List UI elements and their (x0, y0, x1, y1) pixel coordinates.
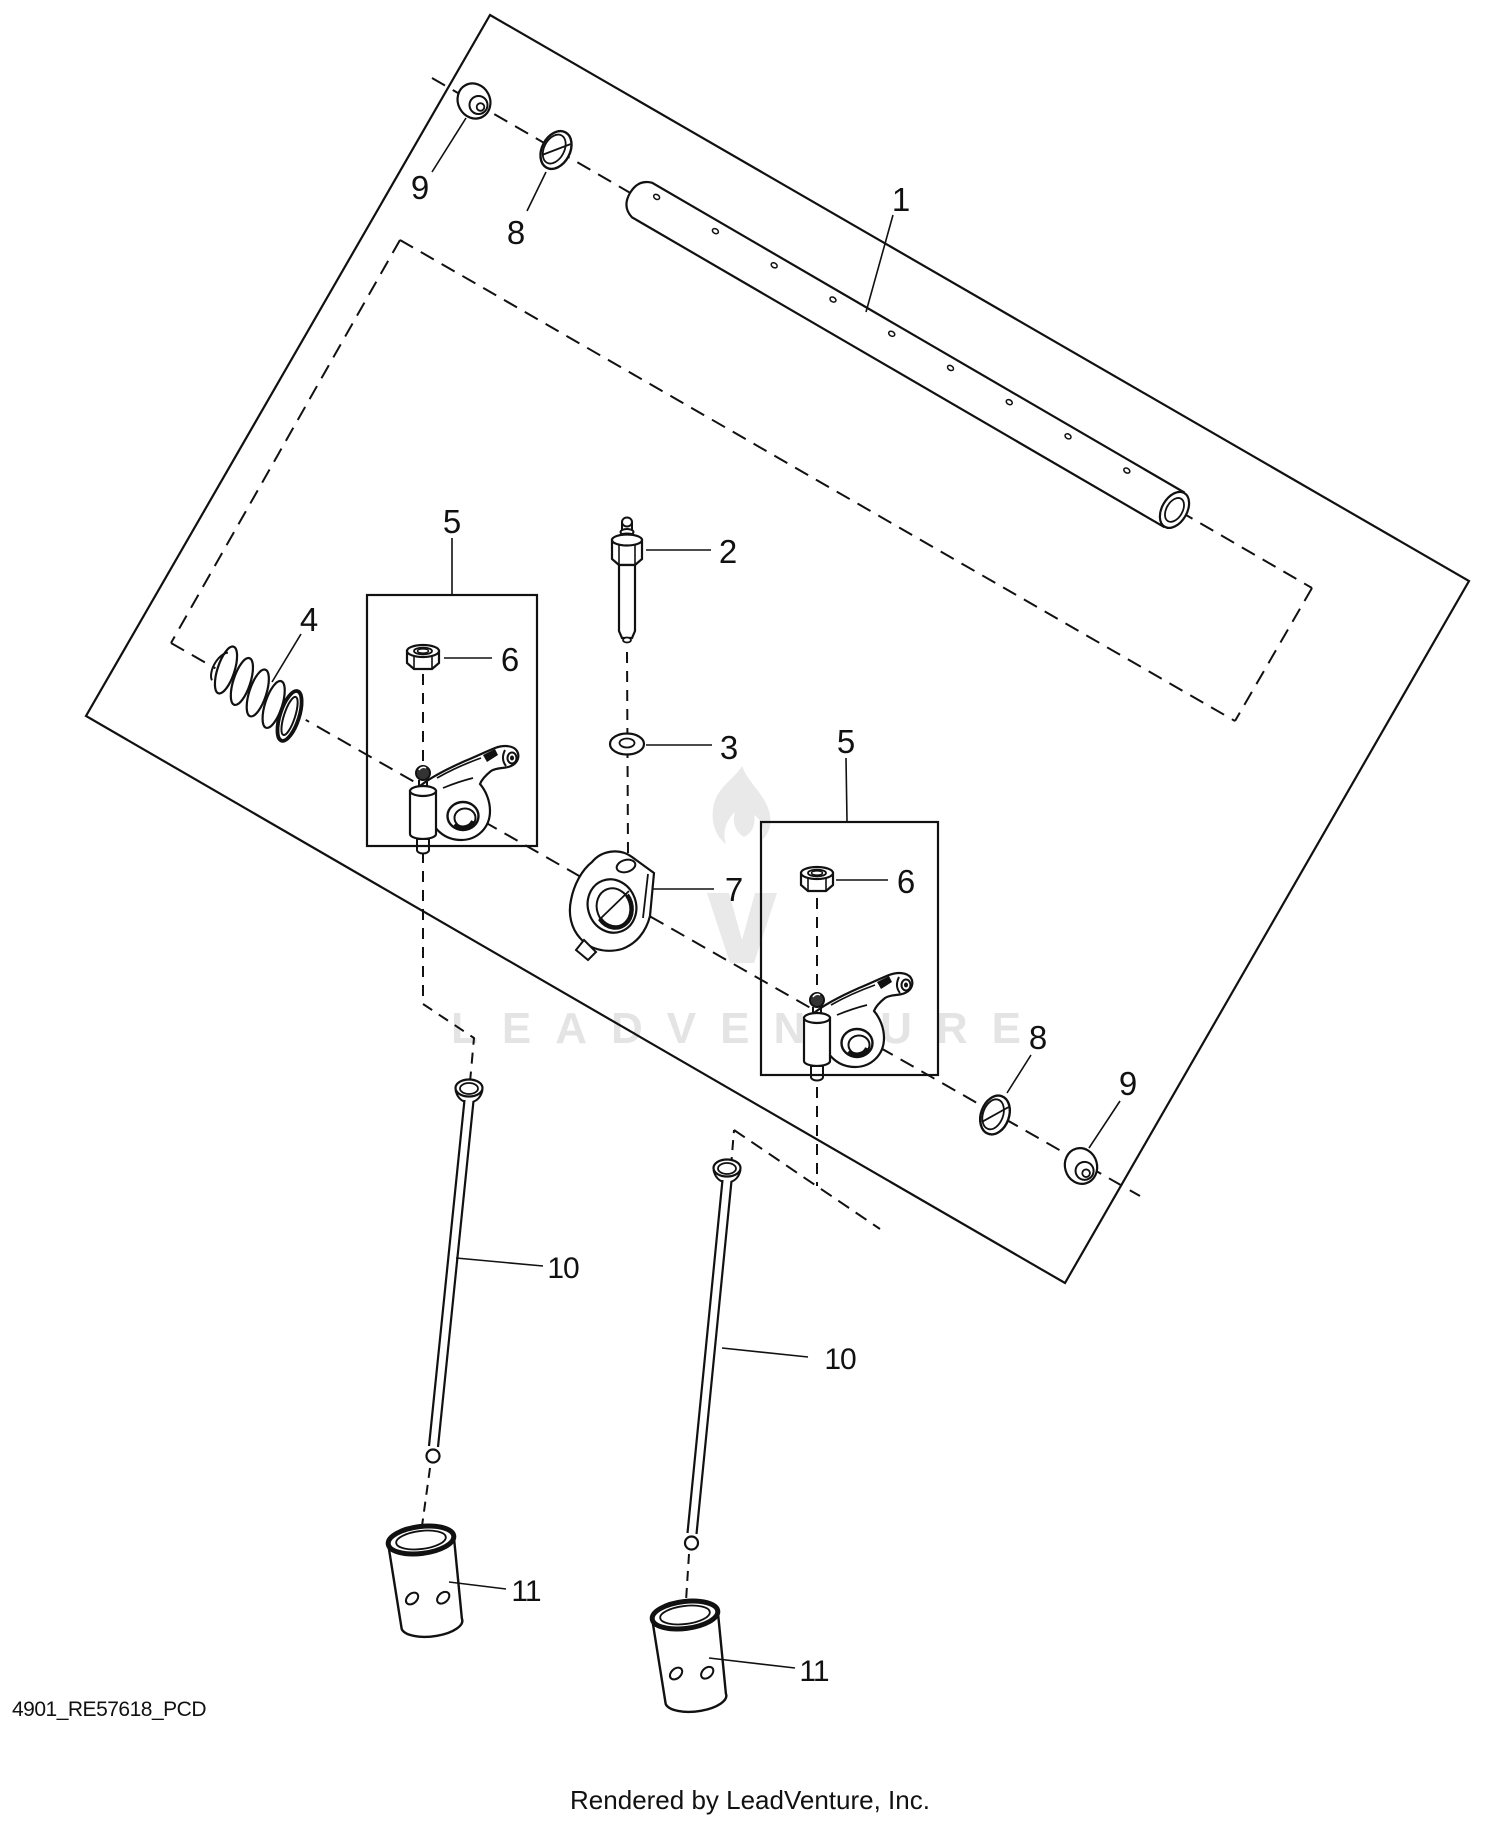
watermark-text: LEADVENTURE (451, 1004, 1045, 1053)
parts-diagram-page: LEADVENTURE (0, 0, 1500, 1823)
callout-8-top: 8 (507, 214, 525, 251)
part-6-nut-right (801, 867, 833, 891)
part-11-follower-left (387, 1523, 466, 1641)
part-6-nut-left (407, 645, 439, 669)
callout-11-right: 11 (799, 1655, 828, 1688)
callout-2: 2 (719, 533, 737, 570)
dashed-lines (171, 78, 1312, 1601)
part-8-cup-washer-top (534, 126, 578, 174)
leadventure-watermark: LEADVENTURE (451, 766, 1045, 1053)
callout-6-left: 6 (501, 641, 519, 678)
leadventure-flame-logo (707, 766, 777, 963)
callout-4: 4 (300, 601, 318, 638)
part-9-cap-bottom (1054, 1138, 1108, 1193)
callout-5-right: 5 (837, 723, 855, 760)
callout-11-left: 11 (511, 1575, 540, 1608)
callout-7: 7 (725, 871, 743, 908)
part-2-stud (612, 518, 642, 643)
outer-boundary (86, 15, 1469, 1283)
part-4-spring (197, 640, 321, 748)
callout-10-right: 10 (824, 1343, 856, 1376)
part-5-rocker-arm-left (410, 746, 518, 853)
part-11-follower-right (651, 1598, 730, 1716)
callout-9-bottom: 9 (1119, 1065, 1137, 1102)
callout-10-left: 10 (547, 1252, 579, 1285)
callout-8-bottom: 8 (1029, 1019, 1047, 1056)
part-9-cap-top (451, 78, 496, 125)
drawing-code: 4901_RE57618_PCD (12, 1698, 206, 1721)
part-10-push-rod-left (427, 1080, 483, 1463)
callout-leader-lines (272, 118, 1120, 1668)
callout-9-top: 9 (411, 169, 429, 206)
part-3-washer (610, 734, 644, 755)
footer-credit: Rendered by LeadVenture, Inc. (570, 1785, 930, 1815)
part-10-push-rod-right (685, 1160, 741, 1550)
exploded-parts-diagram: LEADVENTURE (0, 0, 1500, 1823)
callout-1: 1 (892, 181, 910, 218)
part-8-cup-washer-bottom (975, 1091, 1015, 1138)
part-7-pivot-support (570, 851, 654, 960)
callout-3: 3 (720, 729, 738, 766)
part-1-shaft (620, 176, 1195, 534)
callout-6-right: 6 (897, 863, 915, 900)
callout-5-left: 5 (443, 503, 461, 540)
inner-boundary-left-dashed (171, 240, 400, 643)
